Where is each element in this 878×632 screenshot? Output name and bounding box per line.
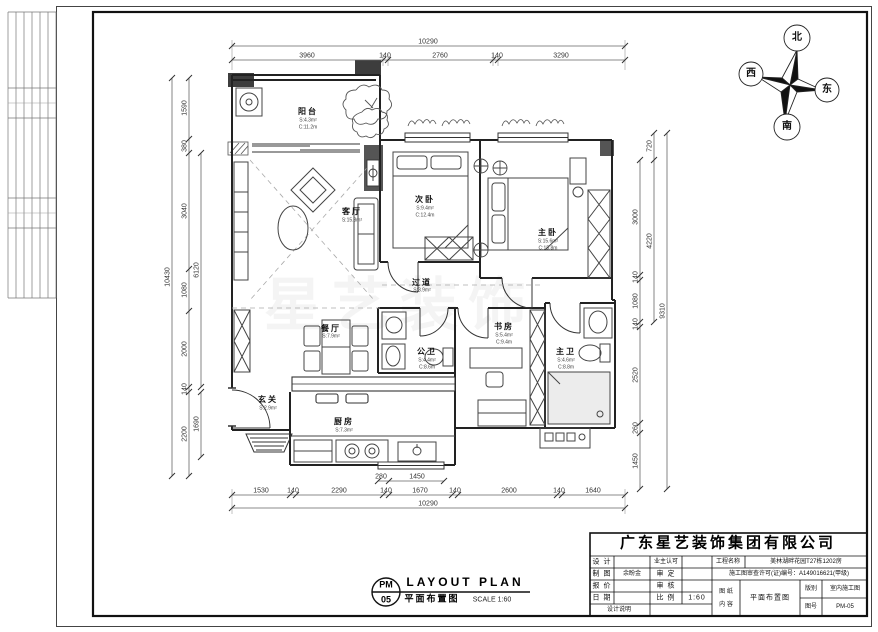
room-label-balcony: 阳台 bbox=[298, 108, 318, 116]
dim-left-7: 2200 bbox=[182, 426, 189, 442]
room-area-bedroom2: S:9.4m² bbox=[416, 207, 434, 212]
room-label-master: 主卧 bbox=[538, 229, 558, 237]
tb-version-value: 室内施工图 bbox=[830, 586, 860, 592]
room-area-dining: S:7.9m² bbox=[322, 335, 340, 340]
dim-bot-1: 1530 bbox=[253, 488, 269, 495]
drawing-sheet: 星艺装饰 bbox=[0, 0, 878, 632]
dim-right-3: 1080 bbox=[633, 293, 640, 309]
coffee-table-diamond bbox=[291, 168, 335, 212]
room-area-balcony: S:4.3m² bbox=[299, 119, 317, 124]
company-name: 广东星艺装饰集团有限公司 bbox=[620, 537, 836, 552]
room-area-master: S:15.6m² bbox=[538, 240, 558, 245]
room-area-entry: S:2.9m² bbox=[259, 407, 277, 412]
balcony-washer bbox=[236, 88, 262, 116]
entry-porch bbox=[246, 434, 292, 452]
dim-right-total: 9310 bbox=[660, 303, 667, 319]
compass-east-label: 东 bbox=[822, 85, 832, 95]
dim-bot-7: 2600 bbox=[501, 488, 517, 495]
dim-right-1: 3000 bbox=[633, 209, 640, 225]
dim-right-6: 260 bbox=[633, 422, 640, 434]
footer-title-en: LAYOUT PLAN bbox=[406, 576, 523, 588]
tb-scale-value: 1:60 bbox=[688, 595, 706, 602]
room-label-living: 客厅 bbox=[342, 208, 362, 216]
tb-content-label-1: 图 纸 bbox=[719, 589, 733, 595]
tb-project-label: 工程名称 bbox=[716, 559, 740, 565]
dim-right-4: 140 bbox=[633, 318, 640, 330]
dim-bot-p1: 280 bbox=[375, 474, 387, 481]
dim-top-1: 3960 bbox=[299, 53, 315, 60]
room-perimeter-bedroom2: C:12.4m bbox=[416, 214, 435, 219]
tb-permit-text: 施工图审查许可(证)编号：A149016621(甲级) bbox=[729, 571, 849, 577]
dim-bot-8: 140 bbox=[553, 488, 565, 495]
binding-strip-table bbox=[8, 12, 56, 298]
tb-scale-label: 比 例 bbox=[657, 595, 676, 602]
dim-top-2: 140 bbox=[379, 53, 391, 60]
dim-left-1: 1590 bbox=[182, 100, 189, 116]
dim-right-i1: 720 bbox=[647, 140, 654, 152]
dim-left-2: 380 bbox=[182, 140, 189, 152]
dining-cabinet bbox=[234, 310, 250, 372]
room-label-corridor: 过道 bbox=[412, 279, 432, 287]
windows bbox=[378, 133, 568, 469]
room-label-bath-public: 公卫 bbox=[417, 348, 437, 356]
dim-bot-4: 140 bbox=[380, 488, 392, 495]
dim-bot-p2: 1450 bbox=[409, 474, 425, 481]
dim-right-i2: 4220 bbox=[647, 233, 654, 249]
room-label-kitchen: 厨房 bbox=[334, 418, 354, 426]
room-perimeter-bath-public: C:8.6m bbox=[419, 366, 435, 371]
dim-left-i2: 1690 bbox=[194, 416, 201, 432]
dim-right-5: 2520 bbox=[633, 367, 640, 383]
room-label-entry: 玄关 bbox=[258, 396, 278, 404]
room-area-study: S:5.4m² bbox=[495, 334, 513, 339]
room-label-bedroom2: 次卧 bbox=[415, 196, 435, 204]
tb-draft-label: 制 图 bbox=[593, 571, 612, 578]
rug-oval bbox=[278, 206, 308, 250]
tb-content-label-2: 内 容 bbox=[719, 602, 733, 608]
tb-design-label: 设 计 bbox=[593, 559, 612, 566]
room-area-corridor: S:3.9m² bbox=[413, 289, 431, 294]
room-area-living: S:15.3m² bbox=[342, 219, 362, 224]
equipment-platform bbox=[540, 428, 590, 448]
room-perimeter-study: C:9.4m bbox=[496, 341, 512, 346]
bar-counter bbox=[292, 377, 455, 403]
tb-number-label: 图号 bbox=[805, 604, 817, 610]
compass-west-label: 西 bbox=[746, 69, 756, 79]
dim-right-2: 140 bbox=[633, 271, 640, 283]
footer-title-cn: 平面布置图 bbox=[404, 595, 459, 604]
dim-left-i1: 6120 bbox=[194, 262, 201, 278]
room-label-dining: 餐厅 bbox=[321, 325, 341, 333]
curtain-squiggles bbox=[408, 120, 564, 127]
room-area-kitchen: S:7.3m² bbox=[335, 429, 353, 434]
tb-owner-label: 业主认可 bbox=[654, 559, 678, 565]
tb-version-label: 版别 bbox=[805, 586, 817, 592]
room-area-bath-master: S:4.6m² bbox=[557, 359, 575, 364]
dim-right-7: 1450 bbox=[633, 453, 640, 469]
dim-left-total: 10430 bbox=[165, 267, 172, 286]
tb-content-value: 平面布置图 bbox=[750, 595, 790, 602]
footer-scale: SCALE 1:60 bbox=[473, 597, 512, 604]
wardrobe-master bbox=[588, 190, 610, 278]
dim-bot-5: 1670 bbox=[412, 488, 428, 495]
compass-north-label: 北 bbox=[792, 33, 802, 43]
dim-top-total: 10290 bbox=[418, 39, 437, 46]
tb-note-label: 设计说明 bbox=[607, 607, 631, 613]
room-label-bath-master: 主卫 bbox=[556, 348, 576, 356]
dim-left-5: 2000 bbox=[182, 341, 189, 357]
tb-project-value: 美林湖畔花园T27栋1202房 bbox=[770, 559, 842, 565]
ceiling-lamp-icon bbox=[474, 159, 507, 257]
tb-approve-label: 审 定 bbox=[657, 571, 676, 578]
dim-left-3: 3040 bbox=[182, 203, 189, 219]
dim-bot-3: 2290 bbox=[331, 488, 347, 495]
footer-code-top: PM bbox=[379, 581, 393, 590]
room-area-bath-public: S:4.4m² bbox=[418, 359, 436, 364]
kitchen-counter bbox=[290, 436, 455, 462]
wall-panel bbox=[367, 160, 379, 186]
dim-top-3: 2760 bbox=[432, 53, 448, 60]
plant bbox=[343, 85, 392, 138]
dim-bot-2: 140 bbox=[287, 488, 299, 495]
dim-left-6: 140 bbox=[182, 383, 189, 395]
room-perimeter-master: C:15.8m bbox=[539, 247, 558, 252]
footer-code-bottom: 05 bbox=[381, 596, 391, 605]
tb-date-label: 日 期 bbox=[593, 595, 612, 602]
dim-bot-6: 140 bbox=[449, 488, 461, 495]
tb-draft-value: 余盼金 bbox=[623, 571, 641, 577]
dim-left-4: 1080 bbox=[182, 282, 189, 298]
dim-bot-9: 1640 bbox=[585, 488, 601, 495]
tb-quote-label: 报 价 bbox=[593, 583, 612, 590]
tb-review-label: 审 核 bbox=[657, 583, 676, 590]
room-label-study: 书房 bbox=[494, 323, 514, 331]
dim-top-4: 140 bbox=[491, 53, 503, 60]
room-perimeter-balcony: C:11.2m bbox=[299, 126, 318, 131]
tv-cabinet bbox=[234, 162, 248, 280]
dim-top-5: 3290 bbox=[553, 53, 569, 60]
tb-number-value: PM-05 bbox=[836, 604, 854, 610]
compass-south-label: 南 bbox=[782, 122, 792, 132]
dresser-master bbox=[570, 158, 586, 197]
dim-bot-total: 10290 bbox=[418, 501, 437, 508]
room-perimeter-bath-master: C:8.8m bbox=[558, 366, 574, 371]
